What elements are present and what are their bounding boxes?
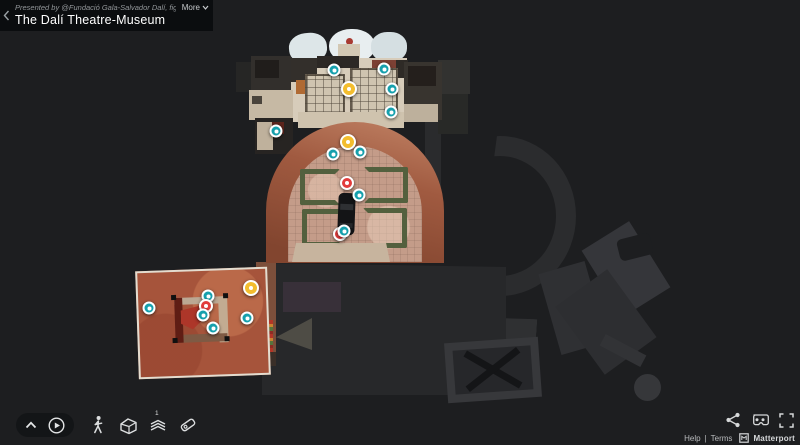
waypoint-marker[interactable] — [243, 280, 259, 296]
waypoint-marker[interactable] — [143, 302, 156, 315]
waypoint-marker[interactable] — [378, 63, 391, 76]
presented-by-text: Presented by @Fundació Gala-Salvador Dal… — [15, 3, 176, 12]
waypoint-marker[interactable] — [354, 146, 367, 159]
more-button[interactable]: More — [182, 3, 209, 12]
chevron-left-icon — [3, 10, 10, 21]
waypoint-marker[interactable] — [338, 225, 351, 238]
measure-tool-button[interactable] — [176, 413, 200, 437]
waypoint-marker[interactable] — [340, 176, 354, 190]
play-circle-icon — [48, 417, 65, 434]
play-tour-button[interactable] — [48, 417, 65, 434]
markers-layer — [0, 0, 800, 445]
walk-mode-icon — [89, 415, 107, 435]
waypoint-marker[interactable] — [241, 312, 254, 325]
dollhouse-mode-icon — [118, 416, 139, 435]
fullscreen-icon — [779, 413, 794, 428]
page-title: The Dalí Theatre-Museum — [15, 13, 209, 27]
playback-pill — [16, 413, 74, 437]
help-link[interactable]: Help — [684, 434, 700, 443]
waypoint-marker[interactable] — [270, 125, 283, 138]
dollhouse-mode-button[interactable] — [116, 413, 140, 437]
bottom-right-controls — [725, 412, 794, 428]
walk-mode-button[interactable] — [86, 413, 110, 437]
bottom-toolbar: 1 — [0, 405, 220, 445]
waypoint-marker[interactable] — [353, 189, 366, 202]
matterport-viewer: Presented by @Fundació Gala-Salvador Dal… — [0, 0, 800, 445]
matterport-logo — [739, 433, 749, 443]
terms-link[interactable]: Terms — [711, 434, 733, 443]
waypoint-marker[interactable] — [328, 64, 341, 77]
floorplan-mode-button[interactable]: 1 — [146, 413, 170, 437]
vr-button[interactable] — [751, 414, 769, 427]
waypoint-marker[interactable] — [207, 322, 220, 335]
vr-goggles-icon — [751, 414, 769, 427]
fullscreen-button[interactable] — [779, 413, 794, 428]
floor-indicator: 1 — [155, 410, 159, 417]
back-button[interactable] — [0, 0, 13, 31]
footer-divider: | — [705, 434, 707, 443]
more-label: More — [182, 3, 200, 12]
waypoint-marker[interactable] — [197, 309, 210, 322]
floorplan-mode-icon — [148, 415, 168, 435]
chevron-up-icon — [25, 421, 37, 429]
waypoint-marker[interactable] — [385, 106, 398, 119]
share-icon — [725, 412, 741, 428]
title-panel: Presented by @Fundació Gala-Salvador Dal… — [0, 0, 213, 31]
share-button[interactable] — [725, 412, 741, 428]
waypoint-marker[interactable] — [386, 83, 399, 96]
matterport-brand-link[interactable]: Matterport — [753, 434, 795, 443]
waypoint-marker[interactable] — [327, 148, 340, 161]
footer-links: Help | Terms Matterport — [684, 433, 795, 443]
collapse-button[interactable] — [25, 421, 37, 429]
measure-tool-icon — [178, 415, 198, 435]
waypoint-marker[interactable] — [341, 81, 357, 97]
chevron-down-icon — [202, 5, 209, 10]
